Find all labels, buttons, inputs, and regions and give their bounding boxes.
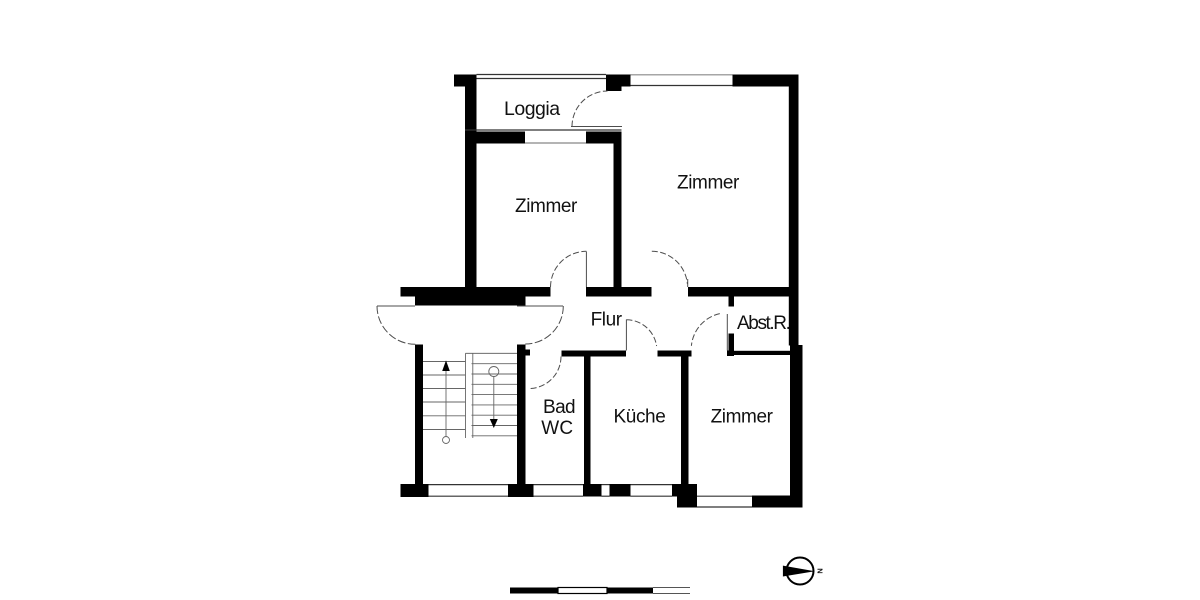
svg-text:Flur: Flur	[591, 310, 623, 331]
svg-text:Zimmer: Zimmer	[677, 173, 740, 194]
svg-text:Loggia: Loggia	[504, 98, 560, 120]
svg-text:N: N	[816, 568, 825, 573]
svg-text:Zimmer: Zimmer	[515, 196, 578, 217]
svg-text:Bad: Bad	[543, 397, 575, 418]
svg-text:Zimmer: Zimmer	[711, 407, 774, 428]
svg-text:Küche: Küche	[614, 407, 666, 428]
svg-text:WC: WC	[541, 418, 573, 439]
svg-text:Abst.R.: Abst.R.	[737, 313, 790, 334]
